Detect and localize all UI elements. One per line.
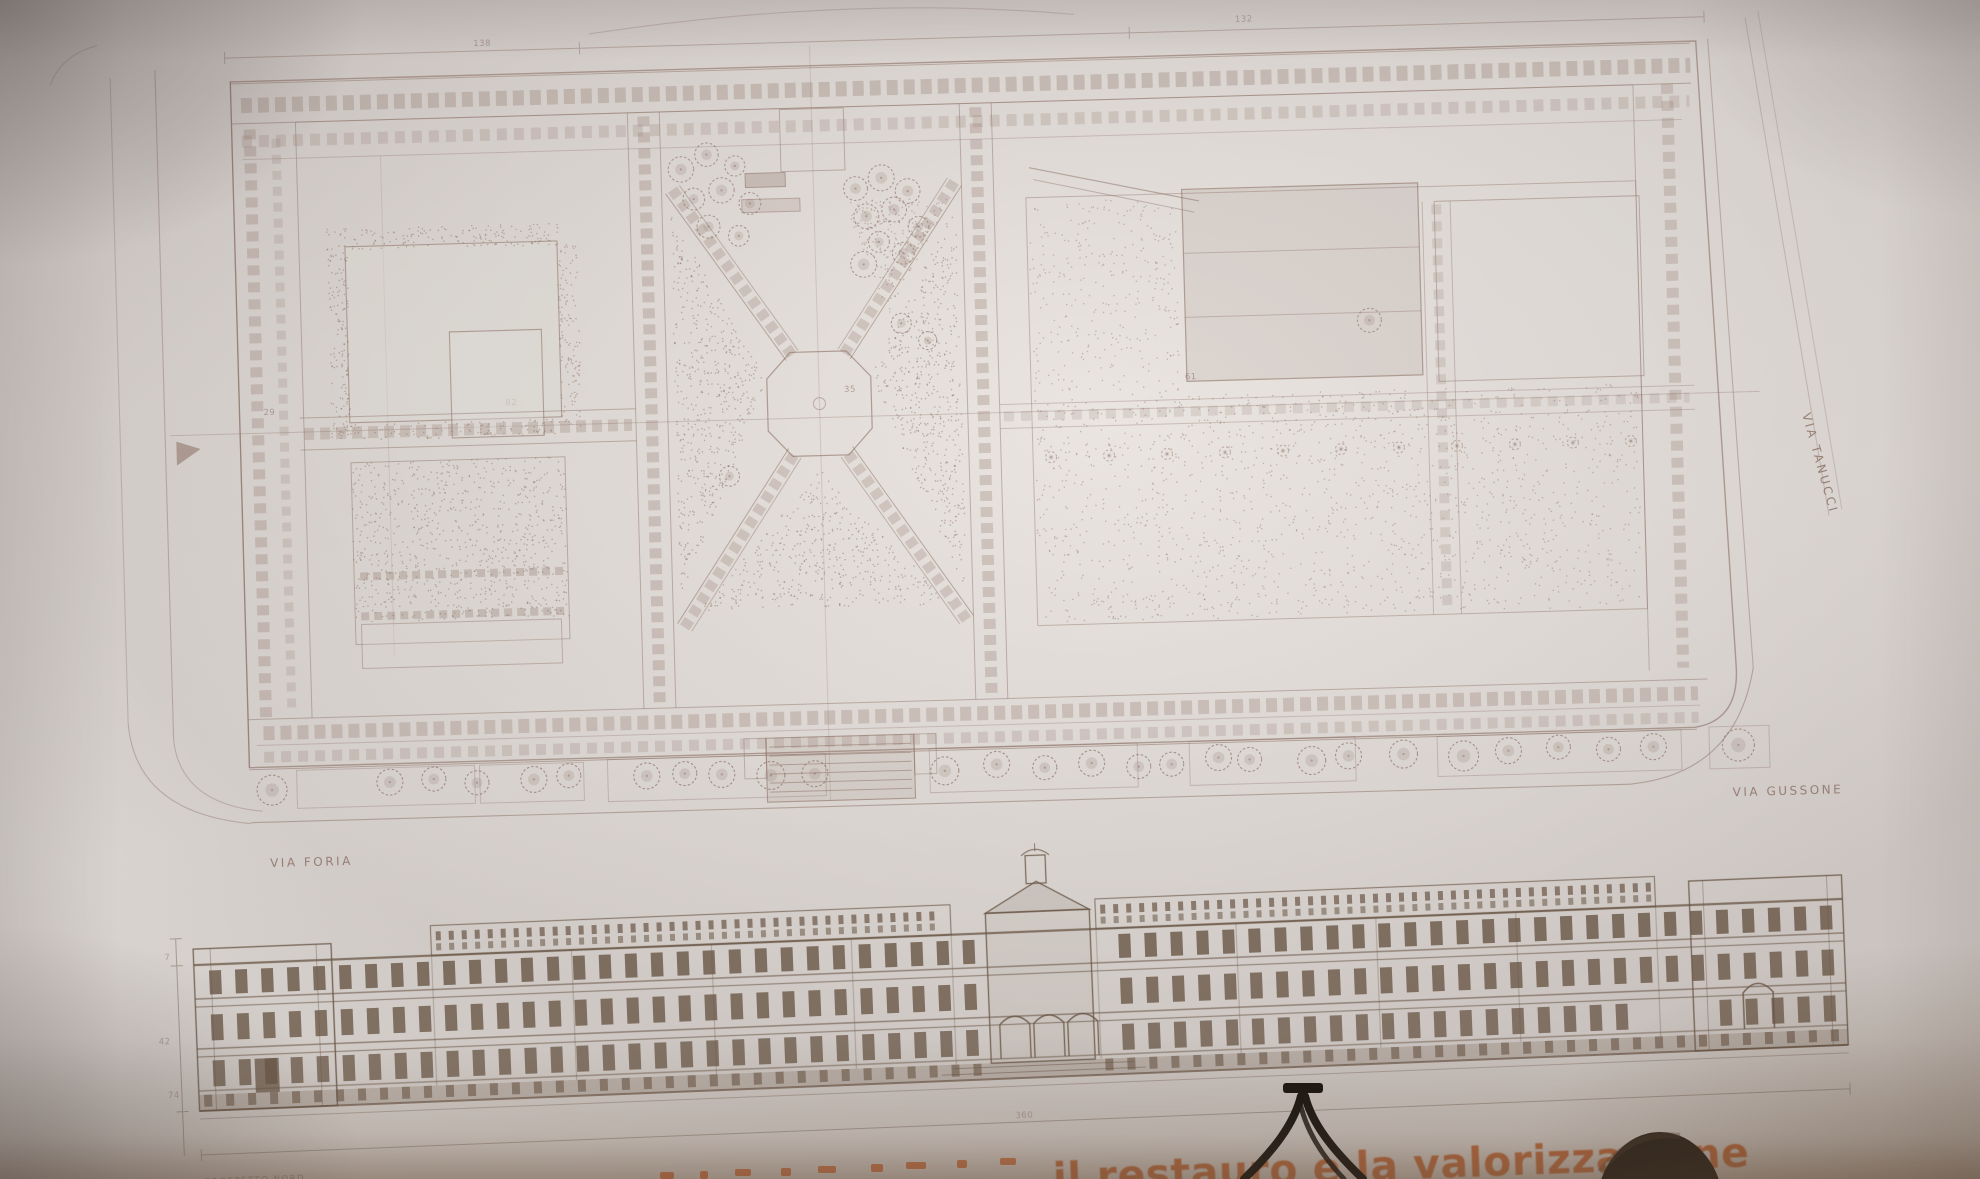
presenter-head-silhouette: [1596, 1132, 1724, 1179]
mic-stand: [1244, 1083, 1363, 1179]
cut-off-text-fragments: [660, 1158, 1016, 1179]
foreground-overlay: [0, 0, 1980, 1179]
photo-of-projected-slide: 138 132 29 82 35 61: [0, 0, 1980, 1179]
